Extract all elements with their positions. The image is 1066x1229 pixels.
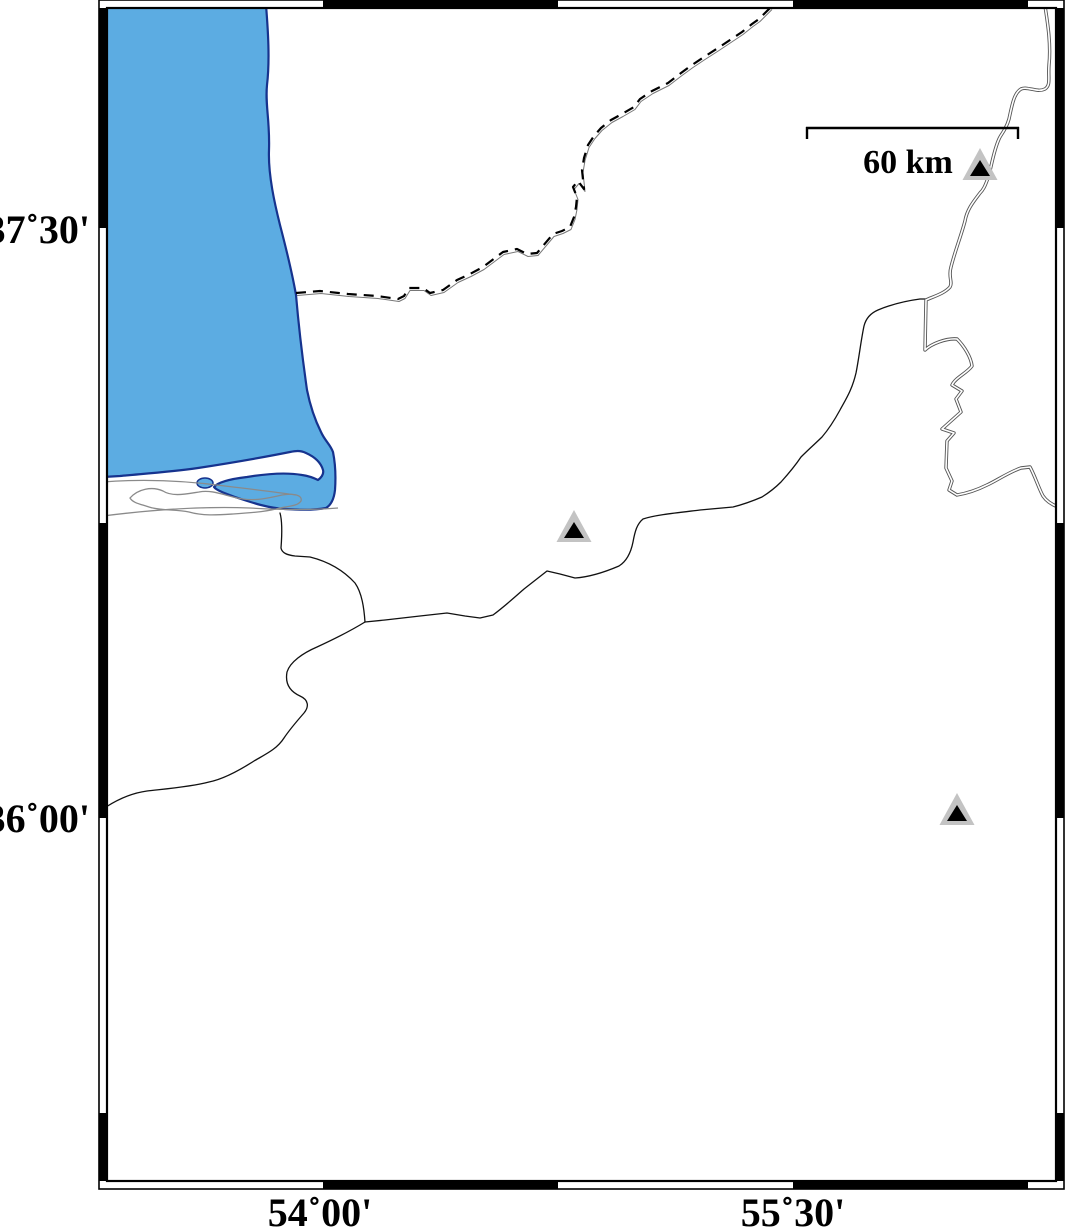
lon-label-54-00: 54˚00' [268,1190,372,1229]
lat-label-36-00: 36˚00' [0,796,90,841]
frame-tick-segment [323,0,558,8]
frame-tick-segment [1056,523,1064,818]
frame-tick-segment [99,8,107,228]
lat-label-37-30: 37˚30' [0,207,90,252]
frame-tick-segment [99,1113,107,1181]
frame-tick-segment [793,1181,1028,1189]
scale-bar-label: 60 km [863,144,953,181]
lon-label-55-30: 55˚30' [741,1190,845,1229]
map-canvas: 60 km 37˚30' 36˚00' 54˚00' 55˚30' [0,0,1066,1229]
frame-tick-segment [99,523,107,818]
frame-tick-segment [793,0,1028,8]
map-figure: 60 km 37˚30' 36˚00' 54˚00' 55˚30' [0,0,1066,1229]
frame-tick-segment [323,1181,558,1189]
frame-tick-segment [1056,8,1064,228]
frame-tick-segment [1056,1113,1064,1181]
